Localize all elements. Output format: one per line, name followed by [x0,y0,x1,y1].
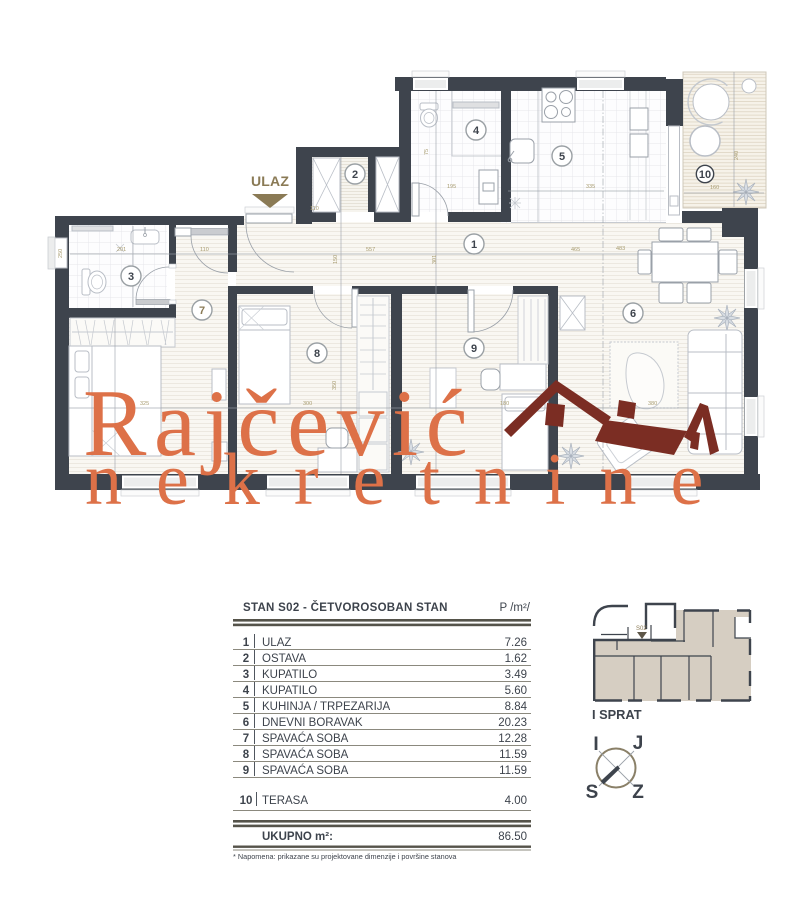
svg-text:I: I [593,734,598,755]
svg-text:ULAZ: ULAZ [262,637,291,649]
svg-text:ULAZ: ULAZ [251,173,289,189]
svg-text:465: 465 [571,247,580,253]
svg-text:3: 3 [243,669,249,681]
svg-text:4: 4 [473,125,480,137]
svg-text:2: 2 [352,169,358,181]
svg-text:110: 110 [200,247,209,253]
svg-text:TERASA: TERASA [262,795,308,807]
svg-text:8.84: 8.84 [505,701,528,713]
svg-text:Z: Z [632,782,644,803]
svg-text:557: 557 [366,247,375,253]
svg-text:11.59: 11.59 [499,765,527,777]
svg-text:S02: S02 [636,626,647,632]
svg-text:160: 160 [710,185,719,191]
svg-text:SPAVAĆA SOBA: SPAVAĆA SOBA [262,748,349,761]
svg-text:P /m²/: P /m²/ [500,602,531,614]
svg-text:9: 9 [243,765,249,777]
svg-text:3: 3 [128,271,134,283]
svg-text:11.59: 11.59 [499,749,527,761]
svg-text:4: 4 [243,685,250,697]
svg-text:7.26: 7.26 [505,637,527,649]
svg-text:KUPATILO: KUPATILO [262,685,317,697]
svg-text:3.49: 3.49 [505,669,527,681]
svg-text:7: 7 [199,305,205,317]
svg-text:nekretnine: nekretnine [85,439,737,521]
svg-text:5: 5 [559,151,565,163]
svg-text:335: 335 [586,184,595,190]
svg-text:1.62: 1.62 [505,653,527,665]
svg-text:STAN S02 - ČETVOROSOBAN STAN: STAN S02 - ČETVOROSOBAN STAN [243,601,448,614]
svg-text:KUHINJA / TRPEZARIJA: KUHINJA / TRPEZARIJA [262,701,391,713]
svg-text:10: 10 [240,795,253,807]
svg-text:UKUPNO m²:: UKUPNO m²: [262,831,333,843]
svg-text:I SPRAT: I SPRAT [592,707,642,722]
svg-text:180: 180 [500,401,509,407]
svg-text:150: 150 [333,255,339,264]
svg-text:DNEVNI BORAVAK: DNEVNI BORAVAK [262,717,363,729]
svg-text:110: 110 [310,206,319,212]
svg-text:20.23: 20.23 [498,717,527,729]
svg-text:OSTAVA: OSTAVA [262,653,306,665]
svg-text:201: 201 [117,247,126,253]
svg-text:4.00: 4.00 [505,795,527,807]
svg-text:240: 240 [734,151,740,160]
svg-text:8: 8 [243,749,250,761]
svg-text:9: 9 [471,343,477,355]
svg-text:SPAVAĆA SOBA: SPAVAĆA SOBA [262,764,349,777]
svg-text:380: 380 [648,401,657,407]
svg-text:301: 301 [432,255,438,264]
svg-text:75: 75 [424,149,430,155]
svg-text:2: 2 [243,653,249,665]
svg-text:J: J [633,733,644,754]
svg-text:1: 1 [243,637,250,649]
svg-text:* Napomena: prikazane su proje: * Napomena: prikazane su projektovane di… [233,852,457,861]
svg-text:5: 5 [243,701,250,713]
svg-text:10: 10 [699,169,711,181]
svg-text:12.28: 12.28 [498,733,527,745]
svg-text:86.50: 86.50 [498,831,527,843]
svg-text:S: S [586,782,599,803]
svg-text:483: 483 [616,246,625,252]
svg-text:6: 6 [630,308,636,320]
svg-text:8: 8 [314,348,320,360]
svg-text:6: 6 [243,717,249,729]
svg-text:5.60: 5.60 [505,685,527,697]
svg-text:KUPATILO: KUPATILO [262,669,317,681]
svg-text:1: 1 [471,239,477,251]
svg-text:195: 195 [447,184,456,190]
svg-text:250: 250 [58,249,64,258]
svg-text:7: 7 [243,733,249,745]
svg-text:SPAVAĆA SOBA: SPAVAĆA SOBA [262,732,349,745]
